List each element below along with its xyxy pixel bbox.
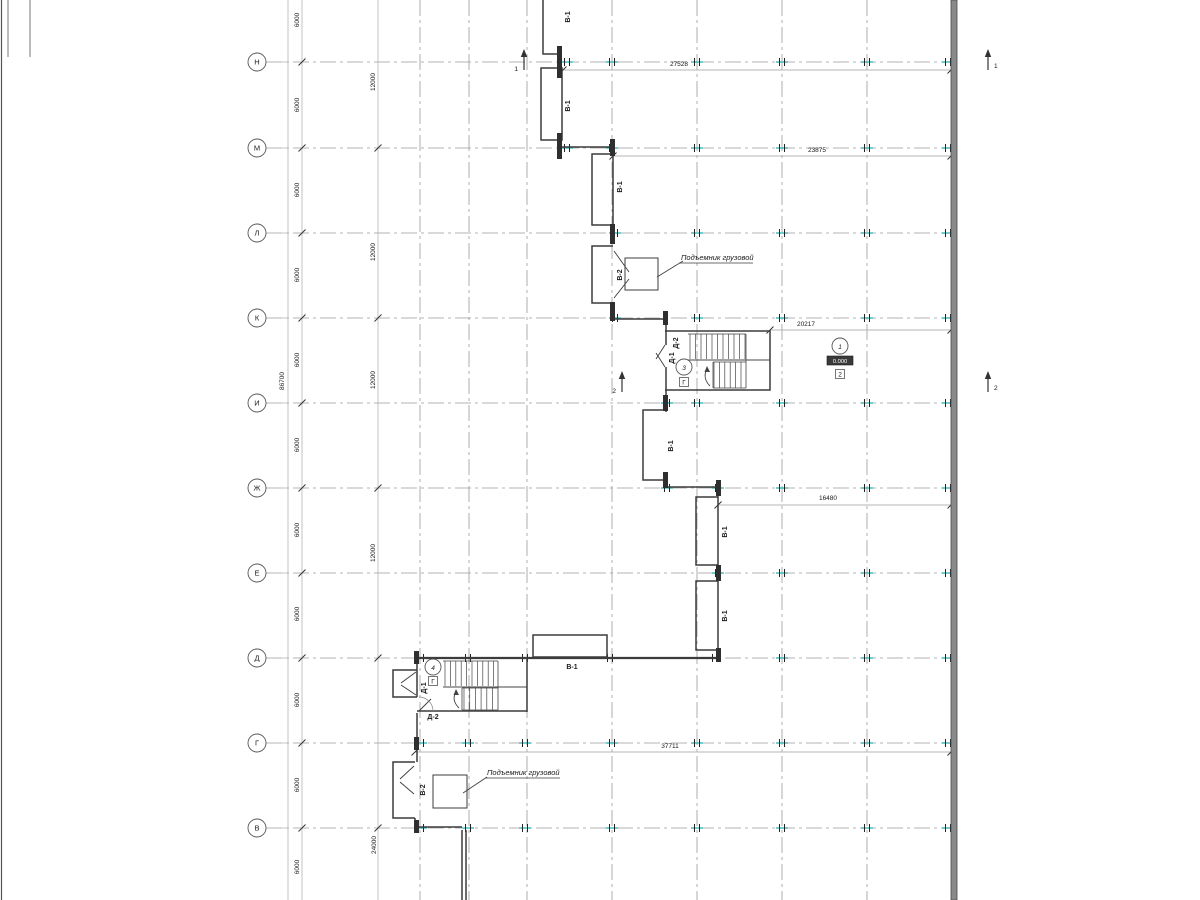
section-2-right: 2	[985, 371, 998, 392]
axis-letter: В	[254, 824, 259, 833]
freight-lift-note-upper: Подъемник грузовой	[681, 253, 754, 262]
stair-stringer	[443, 661, 498, 710]
axis-bubble: Н	[248, 53, 288, 71]
node-markers: 3 Г 4 Г 1 0.000 2	[425, 338, 853, 686]
dim-6000-label: 6000	[294, 12, 301, 27]
wall-pier	[716, 648, 721, 662]
axis-bubble: И	[248, 394, 288, 412]
axis-letter: Д	[254, 654, 259, 663]
axis-letter: Е	[254, 569, 259, 578]
dim-12000-label: 12000	[370, 243, 377, 261]
dim-6000-label: 6000	[294, 352, 301, 367]
axis-bubble: К	[248, 309, 288, 327]
section-1-left: 1	[514, 49, 527, 73]
axis-letter: Л	[255, 229, 260, 238]
wall-pier	[414, 651, 419, 664]
node-box-2-label: 2	[838, 372, 842, 379]
section-markers: 1 1 2 2	[514, 49, 998, 395]
grid-lines	[266, 0, 951, 900]
room-v1-c: В-1	[617, 181, 624, 192]
wall-pier	[716, 565, 721, 581]
grid-tick	[691, 314, 703, 322]
wall-pier	[716, 480, 721, 496]
axis-letter: Г	[255, 739, 259, 748]
section-1-right-label: 1	[994, 63, 998, 70]
dim-6000-label: 6000	[294, 97, 301, 112]
room-v2-lower: В-2	[420, 784, 427, 795]
room-d2-lower: Д-2	[427, 714, 438, 721]
freight-lift-note-lower: Подъемник грузовой	[487, 768, 560, 777]
stair-arrow-head	[705, 366, 711, 372]
stair-arrow-head	[454, 689, 460, 695]
dim-23875: 23875	[808, 147, 826, 154]
axis-letter: Ж	[254, 484, 261, 493]
wall-pier	[414, 737, 419, 750]
wall-pier	[610, 224, 615, 244]
grid-tick	[861, 314, 873, 322]
dim-6000-label: 6000	[294, 522, 301, 537]
grid-tick	[561, 144, 573, 152]
room-v1-b: В-1	[565, 100, 572, 111]
axis-bubble: Л	[248, 224, 288, 242]
elevation-value: 0.000	[833, 359, 848, 365]
dimension-lines	[288, 0, 955, 900]
grid-tick	[519, 739, 531, 747]
freight-lift-shaft-lower	[433, 775, 467, 808]
thick-right-wall	[951, 0, 957, 900]
section-2-left: 2	[612, 371, 625, 395]
dim-6000-label: 6000	[294, 859, 301, 874]
building-walls	[393, 0, 957, 900]
room-v1-a: В-1	[565, 11, 572, 22]
horizontal-dimension-labels: 27528 23875 20217 16480 37711	[661, 61, 837, 750]
section-2-left-label: 2	[612, 388, 616, 395]
repeated-dimension-labels: 6000600060006000600060006000600060006000…	[294, 12, 377, 874]
grid-tick-marks	[415, 58, 954, 832]
axis-bubble: В	[248, 819, 288, 837]
sheet-frame	[2, 0, 31, 900]
axis-letter: И	[254, 399, 259, 408]
wall-pier	[610, 139, 615, 156]
dim-6000-label: 6000	[294, 606, 301, 621]
room-d2-upper: Д-2	[673, 337, 680, 348]
dim-6000-label: 6000	[294, 437, 301, 452]
room-d1-lower: Д-1	[421, 682, 428, 693]
dim-20217: 20217	[797, 321, 815, 328]
dim-24000: 24000	[371, 836, 378, 854]
node-4-label: 4	[431, 665, 435, 672]
grid-tick	[561, 58, 573, 66]
axis-bubbles: НМЛКИЖЕДГВ	[248, 53, 288, 837]
room-d1-upper: Д-1	[669, 352, 676, 363]
dim-6000-label: 6000	[294, 692, 301, 707]
wall-pier	[610, 302, 615, 321]
axis-bubble: Е	[248, 564, 288, 582]
dim-86700: 86700	[279, 372, 286, 390]
grid-tick	[462, 824, 474, 832]
dim-16480: 16480	[819, 495, 837, 502]
node-1-label: 1	[838, 344, 842, 351]
dim-12000-label: 12000	[370, 73, 377, 91]
wall-pier	[663, 395, 668, 411]
axis-bubble: Д	[248, 649, 288, 667]
wall-pier	[557, 133, 562, 159]
dim-6000-label: 6000	[294, 777, 301, 792]
wall-piers	[414, 46, 721, 833]
axis-letter: Н	[254, 58, 259, 67]
wall-pier	[557, 46, 562, 78]
node-box-g-upper-label: Г	[682, 380, 686, 387]
section-1-right: 1	[985, 49, 998, 70]
dim-12000-label: 12000	[370, 371, 377, 389]
node-box-g-lower-label: Г	[431, 679, 435, 686]
axis-bubble: М	[248, 139, 288, 157]
wall-pier	[414, 820, 419, 833]
axis-bubble: Г	[248, 734, 288, 752]
doors-and-leaders	[400, 251, 753, 794]
axis-letter: К	[255, 314, 260, 323]
dim-12000-label: 12000	[370, 544, 377, 562]
room-v1-g: В-1	[566, 664, 577, 671]
dim-27528: 27528	[670, 61, 688, 68]
room-v1-d: В-1	[668, 440, 675, 451]
freight-lift-shaft-upper	[625, 258, 658, 290]
dim-6000-label: 6000	[294, 267, 301, 282]
dim-6000-label: 6000	[294, 182, 301, 197]
room-v1-f: В-1	[722, 610, 729, 621]
node-3-label: 3	[682, 365, 686, 372]
floor-plan-canvas: НМЛКИЖЕДГВ 60006000600060006000600060006…	[0, 0, 1200, 900]
dim-37711: 37711	[661, 743, 679, 750]
grid-tick	[462, 739, 474, 747]
section-2-right-label: 2	[994, 385, 998, 392]
section-1-left-label: 1	[514, 66, 518, 73]
room-v2-upper: В-2	[617, 269, 624, 280]
grid-tick	[776, 314, 788, 322]
axis-bubble: Ж	[248, 479, 288, 497]
room-v1-e: В-1	[722, 526, 729, 537]
grid-tick	[519, 824, 531, 832]
axis-letter: М	[254, 144, 260, 153]
wall-pier	[663, 311, 668, 325]
wall-pier	[663, 472, 668, 488]
